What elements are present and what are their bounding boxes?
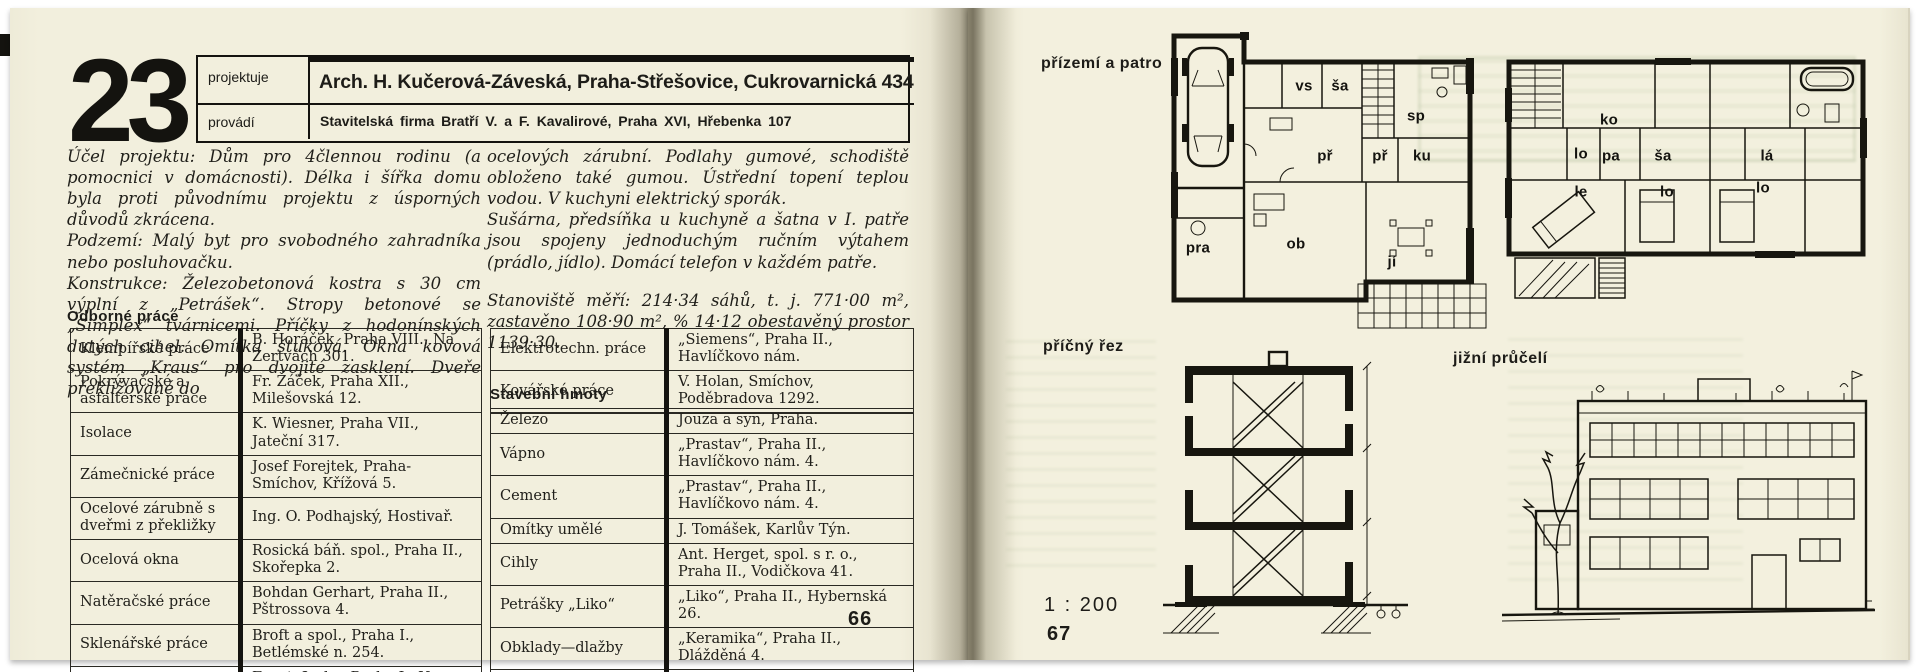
trade-label: Natěračské práce (71, 582, 241, 624)
room-label-pr2: př (1372, 148, 1388, 165)
material-label: Obklady—dlažby (491, 628, 667, 670)
role-build-label: provádí (198, 103, 310, 139)
bathroom-fixtures (1797, 68, 1853, 122)
material-label: Vápno (491, 434, 667, 476)
project-header-box: projektuje Arch. H. Kučerová-Záveská, Pr… (196, 55, 910, 143)
left-page-number: 66 (848, 608, 872, 631)
beds-symbols (1533, 190, 1754, 248)
trades-table-row: Elektrotechn. práce „Siemens“, Praha II.… (491, 329, 914, 371)
paragraph-purpose: Účel projektu: Dům pro 4člennou rodinu (… (67, 146, 481, 230)
trades-table-row: Natěračské práce Bohdan Gerhart, Praha I… (71, 582, 482, 624)
paragraph-finishes: ocelových zárubní. Podlahy gumové, schod… (487, 146, 909, 209)
section-label: příčný řez (1043, 338, 1124, 356)
room-label-vs: vs (1295, 78, 1312, 95)
room-label-ko: ko (1600, 112, 1618, 129)
paragraph-services: Sušárna, předsíňka u kuchyně a šatna v I… (487, 209, 909, 272)
room-label-sa2: ša (1654, 148, 1671, 165)
room-label-ku: ku (1413, 148, 1431, 165)
tree-sketch (1524, 452, 1585, 615)
floor-plans-label: přízemí a patro (1041, 55, 1162, 73)
trade-contractor: Bohdan Gerhart, Praha II., Pštrossova 4. (241, 582, 482, 624)
terrace-grid (1358, 284, 1486, 328)
materials-table: Železo Jouza a syn, Praha. Vápno „Prasta… (490, 408, 914, 672)
trade-contractor: Ing. O. Podhajský, Hostivař. (241, 497, 482, 539)
foundation-hatch (1163, 602, 1371, 633)
room-label-le: le (1574, 184, 1587, 201)
materials-table-row: Cement „Prastav“, Praha II., Havlíčkovo … (491, 476, 914, 518)
trade-label: Zámečnické práce (71, 455, 241, 497)
room-label-ji: jí (1388, 254, 1397, 271)
trade-label: Ocelové zárubně s dveřmi z překližky (71, 497, 241, 539)
material-supplier: Ant. Herget, spol. s r. o., Praha II., V… (667, 543, 914, 585)
room-label-sa: ša (1331, 78, 1348, 95)
scale-label: 1 : 200 (1044, 594, 1119, 617)
materials-table-row: Vápno „Prastav“, Praha II., Havlíčkovo n… (491, 434, 914, 476)
trade-label: Elektrotechn. práce (491, 329, 667, 371)
trades-heading: Odborné práce (67, 308, 179, 325)
south-facade-svg (1500, 363, 1875, 633)
right-page-number: 67 (1047, 623, 1071, 646)
room-label-lo3: lo (1756, 180, 1770, 197)
window-bands (1590, 423, 1854, 609)
trade-contractor: Frant. Joska, Praha I., U Radnice 14. (241, 666, 482, 672)
cross-section-svg (1163, 350, 1408, 650)
trades-table-row: Malířské práce Frant. Joska, Praha I., U… (71, 666, 482, 672)
room-label-sp: sp (1407, 108, 1425, 125)
trades-table-row: Pokrývačské a asfaltérské práce Fr. Žáče… (71, 371, 482, 413)
room-label-lo1: lo (1574, 146, 1588, 163)
material-supplier: „Liko“, Praha II., Hybernská 26. (667, 585, 914, 627)
material-supplier: „Prastav“, Praha II., Havlíčkovo nám. 4. (667, 434, 914, 476)
architect-name: Arch. H. Kučerová-Záveská, Praha-Střešov… (310, 57, 914, 103)
trades-table-row: Klempířské práce B. Horáček, Praha VIII.… (71, 329, 482, 371)
material-supplier: „Keramika“, Praha II., Dlážděná 4. (667, 628, 914, 670)
materials-table-row: Železo Jouza a syn, Praha. (491, 409, 914, 434)
ground-floor-plan-drawing: vs ša sp př př ku pra ob jí (1170, 32, 1490, 332)
room-label-pa: pa (1602, 148, 1620, 165)
material-label: Cihly (491, 543, 667, 585)
room-label-la: lá (1760, 148, 1773, 165)
material-label: Petrášky „Liko“ (491, 585, 667, 627)
first-floor-plan-svg (1505, 58, 1870, 303)
room-label-ob: ob (1287, 236, 1306, 253)
trade-label: Klempířské práce (71, 329, 241, 371)
material-label: Omítky umělé (491, 518, 667, 543)
staircase-flights (1233, 382, 1303, 596)
trade-contractor: Josef Forejtek, Praha-Smíchov, Křížová 5… (241, 455, 482, 497)
ground-floor-plan-svg (1170, 32, 1490, 332)
materials-table-row: Omítky umělé J. Tomášek, Karlův Týn. (491, 518, 914, 543)
show-through-block (1006, 340, 1156, 575)
trade-contractor: „Siemens“, Praha II., Havlíčkovo nám. (667, 329, 914, 371)
materials-heading: Stavební hmoty (490, 386, 607, 403)
cross-section-drawing (1163, 350, 1408, 650)
first-floor-plan-drawing: ko lo pa ša lá le lo lo (1505, 58, 1870, 303)
room-label-lo2: lo (1660, 184, 1674, 201)
left-page: 23 projektuje Arch. H. Kučerová-Záveská,… (10, 8, 968, 660)
stairs-symbol (1511, 62, 1561, 128)
trade-label: Sklenářské práce (71, 624, 241, 666)
roof-railing-and-plants (1592, 371, 1862, 401)
materials-table-row: Obklady—dlažby „Keramika“, Praha II., Dl… (491, 628, 914, 670)
paragraph-basement: Podzemí: Malý byt pro svobodného zahradn… (67, 230, 481, 272)
trade-contractor: Broft a spol., Praha I., Betlémské n. 25… (241, 624, 482, 666)
trade-contractor: Rosická báň. spol., Praha II., Skořepka … (241, 540, 482, 582)
material-label: Železo (491, 409, 667, 434)
description-column-2: ocelových zárubní. Podlahy gumové, schod… (487, 146, 909, 353)
trades-table-row: Zámečnické práce Josef Forejtek, Praha-S… (71, 455, 482, 497)
trades-table-row: Ocelové zárubně s dveřmi z překližky Ing… (71, 497, 482, 539)
trade-contractor: K. Wiesner, Praha VII., Jateční 317. (241, 413, 482, 455)
dimension-line (1363, 362, 1400, 618)
role-design-label: projektuje (198, 57, 310, 103)
right-page: přízemí a patro (968, 8, 1910, 660)
trade-contractor: B. Horáček, Praha VIII., Na Žertvách 301… (241, 329, 482, 371)
book-spread-scan: 23 projektuje Arch. H. Kučerová-Záveská,… (0, 0, 1920, 672)
trade-label: Isolace (71, 413, 241, 455)
trade-label: Ocelová okna (71, 540, 241, 582)
trade-contractor: Fr. Žáček, Praha XII., Milešovská 12. (241, 371, 482, 413)
room-label-pra: pra (1186, 240, 1210, 257)
trades-table-row: Sklenářské práce Broft a spol., Praha I.… (71, 624, 482, 666)
material-label: Cement (491, 476, 667, 518)
trade-label: Pokrývačské a asfaltérské práce (71, 371, 241, 413)
south-facade-drawing (1500, 363, 1875, 633)
builder-name: Stavitelská firma Bratří V. a F. Kavalir… (310, 103, 914, 139)
project-number: 23 (68, 50, 185, 154)
trade-label: Malířské práce (71, 666, 241, 672)
stairs-symbol (1362, 62, 1394, 138)
material-supplier: Jouza a syn, Praha. (667, 409, 914, 434)
trades-table-row: Ocelová okna Rosická báň. spol., Praha I… (71, 540, 482, 582)
car-symbol (1182, 48, 1234, 166)
room-label-pr1: př (1317, 148, 1333, 165)
balcony-and-garden-stairs (1515, 258, 1625, 298)
materials-table-row: Cihly Ant. Herget, spol. s r. o., Praha … (491, 543, 914, 585)
trades-table: Klempířské práce B. Horáček, Praha VIII.… (70, 328, 482, 672)
material-supplier: J. Tomášek, Karlův Týn. (667, 518, 914, 543)
material-supplier: „Prastav“, Praha II., Havlíčkovo nám. 4. (667, 476, 914, 518)
trades-table-row: Isolace K. Wiesner, Praha VII., Jateční … (71, 413, 482, 455)
